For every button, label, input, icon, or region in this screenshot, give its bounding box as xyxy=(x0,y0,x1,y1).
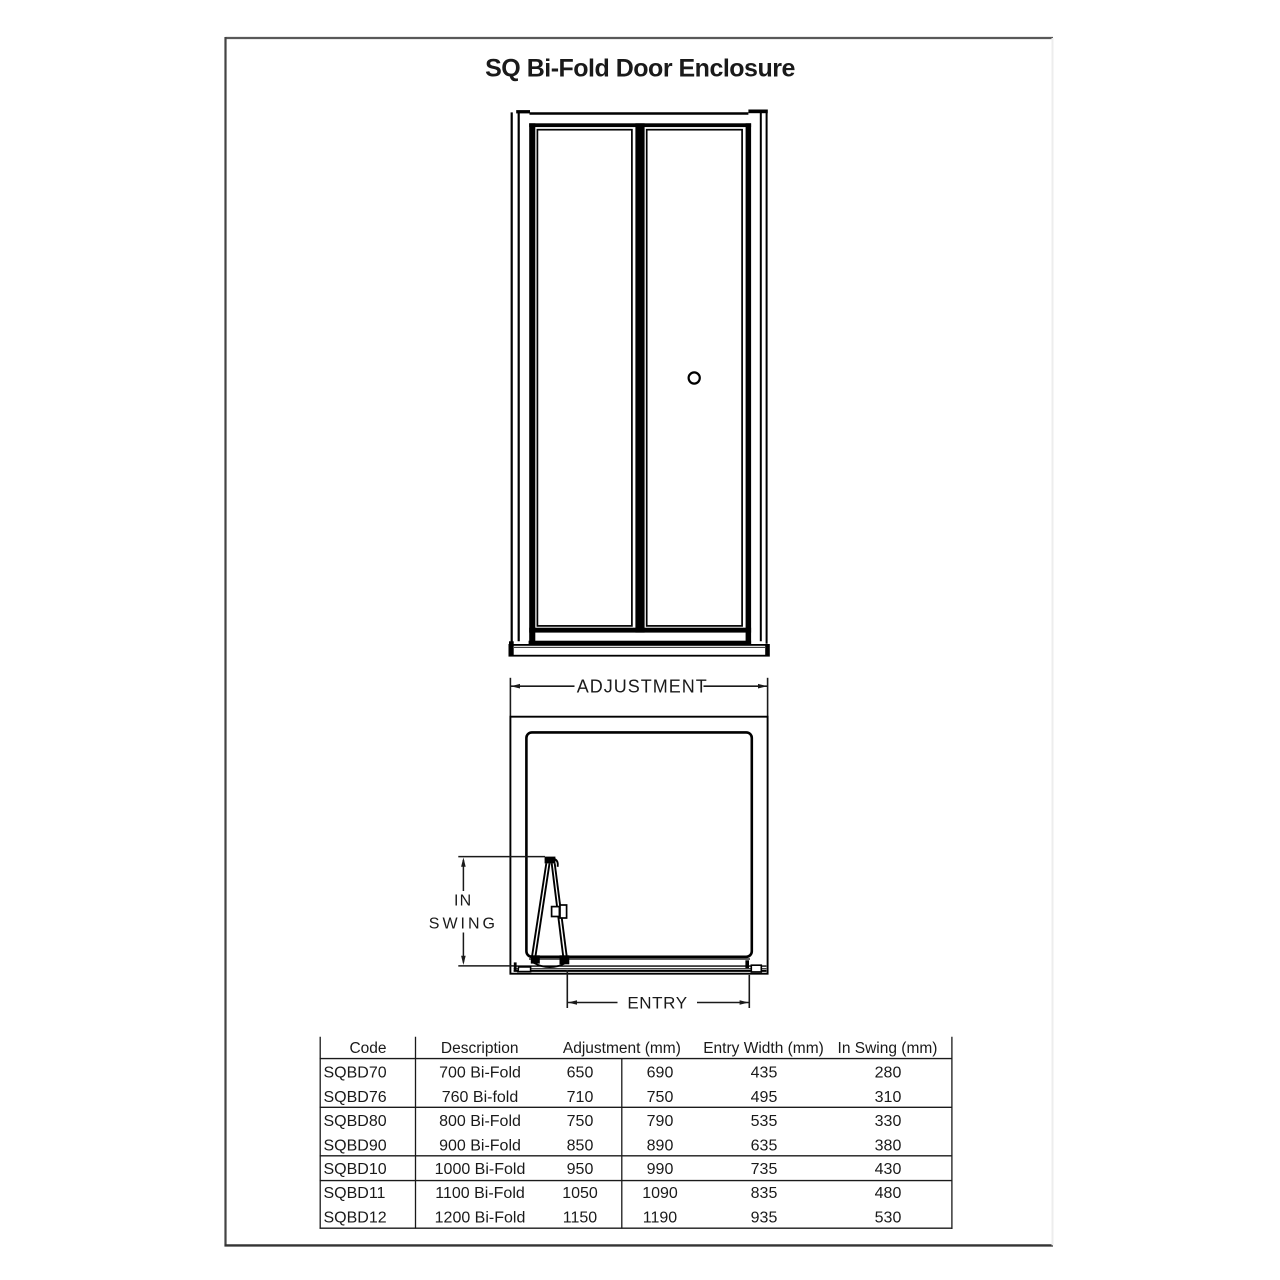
svg-text:800 Bi-Fold: 800 Bi-Fold xyxy=(439,1113,521,1130)
svg-text:280: 280 xyxy=(875,1065,902,1082)
svg-text:535: 535 xyxy=(751,1113,778,1130)
svg-text:435: 435 xyxy=(751,1065,778,1082)
svg-text:380: 380 xyxy=(875,1137,902,1154)
svg-text:760 Bi-fold: 760 Bi-fold xyxy=(442,1089,519,1106)
svg-text:480: 480 xyxy=(875,1185,902,1202)
svg-text:1150: 1150 xyxy=(563,1209,598,1226)
svg-text:SQBD80: SQBD80 xyxy=(324,1113,387,1130)
svg-text:750: 750 xyxy=(567,1113,594,1130)
svg-text:310: 310 xyxy=(875,1089,902,1106)
svg-text:In Swing (mm): In Swing (mm) xyxy=(838,1040,938,1057)
svg-text:1090: 1090 xyxy=(642,1185,678,1202)
svg-text:990: 990 xyxy=(647,1161,674,1178)
svg-text:SQBD90: SQBD90 xyxy=(324,1137,387,1154)
svg-text:710: 710 xyxy=(567,1089,594,1106)
svg-text:690: 690 xyxy=(647,1065,674,1082)
svg-text:1050: 1050 xyxy=(562,1185,598,1202)
svg-text:495: 495 xyxy=(751,1089,778,1106)
svg-text:700 Bi-Fold: 700 Bi-Fold xyxy=(439,1065,521,1082)
svg-text:635: 635 xyxy=(751,1137,778,1154)
svg-text:430: 430 xyxy=(875,1161,902,1178)
svg-text:SQBD76: SQBD76 xyxy=(324,1089,387,1106)
svg-text:1100 Bi-Fold: 1100 Bi-Fold xyxy=(435,1185,525,1202)
svg-text:SWING: SWING xyxy=(429,916,498,933)
svg-text:850: 850 xyxy=(567,1137,594,1154)
svg-text:1190: 1190 xyxy=(643,1209,678,1226)
svg-text:Entry Width (mm): Entry Width (mm) xyxy=(703,1040,824,1057)
svg-text:530: 530 xyxy=(875,1209,902,1226)
svg-text:Code: Code xyxy=(349,1040,386,1057)
svg-text:SQBD70: SQBD70 xyxy=(324,1065,387,1082)
svg-text:330: 330 xyxy=(875,1113,902,1130)
svg-text:Description: Description xyxy=(441,1040,519,1057)
svg-text:750: 750 xyxy=(647,1089,674,1106)
svg-text:Adjustment (mm): Adjustment (mm) xyxy=(563,1040,681,1057)
svg-text:SQ Bi-Fold Door Enclosure: SQ Bi-Fold Door Enclosure xyxy=(485,55,795,83)
svg-text:735: 735 xyxy=(751,1161,778,1178)
svg-text:650: 650 xyxy=(567,1065,594,1082)
svg-text:890: 890 xyxy=(647,1137,674,1154)
svg-text:935: 935 xyxy=(751,1209,778,1226)
svg-text:ENTRY: ENTRY xyxy=(627,994,687,1013)
svg-text:950: 950 xyxy=(567,1161,594,1178)
svg-text:IN: IN xyxy=(454,893,472,910)
svg-text:1000 Bi-Fold: 1000 Bi-Fold xyxy=(435,1161,526,1178)
svg-text:SQBD10: SQBD10 xyxy=(324,1161,387,1178)
svg-text:1200 Bi-Fold: 1200 Bi-Fold xyxy=(435,1209,526,1226)
svg-text:835: 835 xyxy=(751,1185,778,1202)
svg-text:SQBD12: SQBD12 xyxy=(324,1209,387,1226)
svg-text:790: 790 xyxy=(647,1113,674,1130)
svg-text:ADJUSTMENT: ADJUSTMENT xyxy=(577,677,708,697)
svg-text:SQBD11: SQBD11 xyxy=(324,1185,386,1202)
svg-text:900 Bi-Fold: 900 Bi-Fold xyxy=(439,1137,521,1154)
